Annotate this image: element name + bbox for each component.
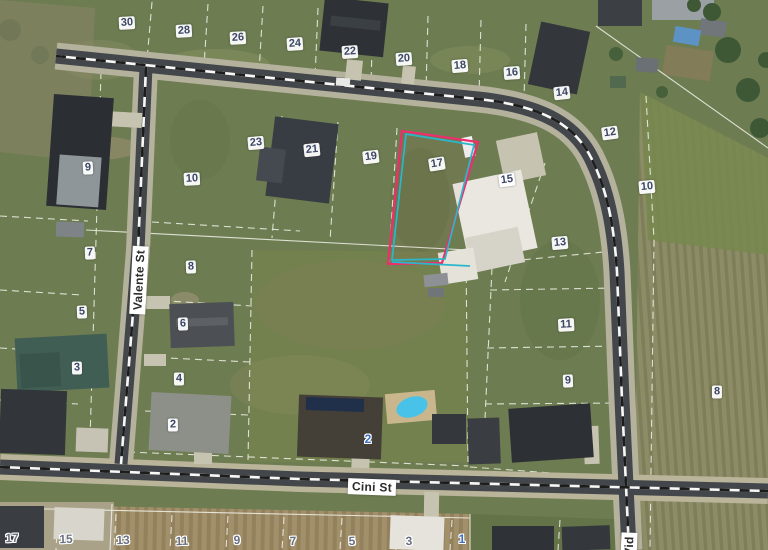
lot-label-14: 14 bbox=[553, 86, 571, 101]
lot-label-20: 20 bbox=[395, 52, 412, 66]
lot-label-26: 26 bbox=[230, 31, 247, 45]
street-label-cini-st: Cini St bbox=[348, 478, 397, 496]
lot-label-3: 3 bbox=[72, 361, 82, 374]
lot-label-13: 13 bbox=[116, 533, 130, 547]
lot-label-7: 7 bbox=[85, 246, 96, 259]
lot-label-10: 10 bbox=[638, 180, 655, 194]
lot-label-17: 17 bbox=[5, 531, 19, 545]
map-canvas[interactable]: 3028262422201816141210232119171513119891… bbox=[0, 0, 768, 550]
lot-label-8: 8 bbox=[186, 260, 197, 273]
lot-label-13: 13 bbox=[551, 236, 568, 250]
lot-label-19: 19 bbox=[362, 150, 380, 165]
lot-label-11: 11 bbox=[558, 318, 574, 332]
lot-label-6: 6 bbox=[178, 317, 189, 330]
lot-label-9: 9 bbox=[83, 161, 94, 175]
lot-label-4: 4 bbox=[174, 372, 184, 385]
lot-label-15: 15 bbox=[498, 172, 516, 187]
lot-label-9: 9 bbox=[563, 374, 574, 387]
lot-label-10: 10 bbox=[184, 172, 201, 186]
lot-label-24: 24 bbox=[286, 37, 303, 51]
street-label-vid: Vid bbox=[621, 532, 638, 550]
lot-label-5: 5 bbox=[77, 305, 88, 318]
lot-label-30: 30 bbox=[119, 16, 136, 30]
lot-label-11: 11 bbox=[175, 534, 188, 548]
lot-label-9: 9 bbox=[233, 533, 240, 547]
lot-label-23: 23 bbox=[247, 136, 264, 150]
lot-label-18: 18 bbox=[451, 59, 468, 73]
lot-label-16: 16 bbox=[503, 66, 520, 80]
lot-label-8: 8 bbox=[712, 386, 722, 399]
lot-label-2: 2 bbox=[365, 432, 372, 446]
lot-label-7: 7 bbox=[289, 534, 296, 548]
lot-label-15: 15 bbox=[59, 532, 73, 546]
street-label-valente-st: Valente St bbox=[129, 245, 149, 314]
lot-label-12: 12 bbox=[601, 125, 619, 140]
lot-label-5: 5 bbox=[348, 534, 355, 548]
labels-layer: 3028262422201816141210232119171513119891… bbox=[0, 0, 768, 550]
lot-label-2: 2 bbox=[168, 418, 178, 431]
lot-label-21: 21 bbox=[303, 143, 321, 158]
lot-label-3: 3 bbox=[405, 534, 412, 548]
lot-label-17: 17 bbox=[428, 156, 446, 171]
lot-label-22: 22 bbox=[341, 45, 358, 59]
lot-label-28: 28 bbox=[176, 24, 193, 38]
lot-label-1: 1 bbox=[459, 532, 466, 546]
